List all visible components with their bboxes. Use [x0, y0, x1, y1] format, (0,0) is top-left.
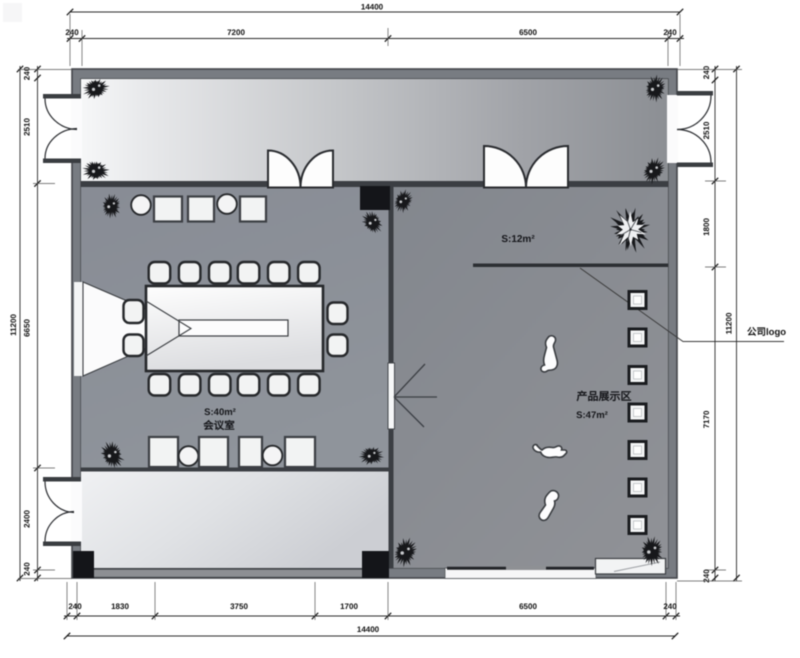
- svg-text:6500: 6500: [519, 28, 537, 37]
- svg-text:11200: 11200: [9, 314, 18, 336]
- svg-text:2510: 2510: [23, 118, 32, 136]
- svg-text:7200: 7200: [227, 28, 245, 37]
- svg-text:产品展示区: 产品展示区: [577, 390, 632, 403]
- svg-text:14400: 14400: [357, 625, 380, 634]
- svg-text:1800: 1800: [702, 218, 711, 236]
- svg-text:会议室: 会议室: [203, 419, 235, 432]
- svg-text:7170: 7170: [702, 410, 711, 428]
- svg-text:2400: 2400: [23, 510, 32, 528]
- svg-text:6500: 6500: [519, 602, 537, 611]
- svg-text:S:12m²: S:12m²: [501, 234, 535, 245]
- svg-text:1700: 1700: [340, 602, 358, 611]
- svg-text:1830: 1830: [111, 602, 129, 611]
- svg-text:S:47m²: S:47m²: [576, 410, 608, 421]
- svg-text:公司logo: 公司logo: [747, 326, 786, 338]
- svg-text:6650: 6650: [23, 319, 32, 337]
- svg-text:14400: 14400: [361, 3, 384, 12]
- svg-text:240: 240: [68, 602, 82, 611]
- svg-text:S:40m²: S:40m²: [204, 407, 236, 418]
- svg-text:240: 240: [663, 28, 677, 37]
- svg-text:11200: 11200: [725, 312, 734, 334]
- svg-text:2510: 2510: [702, 121, 711, 139]
- svg-text:240: 240: [23, 66, 32, 80]
- svg-text:240: 240: [702, 569, 711, 583]
- svg-text:3750: 3750: [230, 602, 248, 611]
- svg-text:240: 240: [23, 562, 32, 576]
- svg-text:240: 240: [65, 28, 79, 37]
- svg-text:240: 240: [702, 65, 711, 79]
- svg-text:240: 240: [663, 602, 677, 611]
